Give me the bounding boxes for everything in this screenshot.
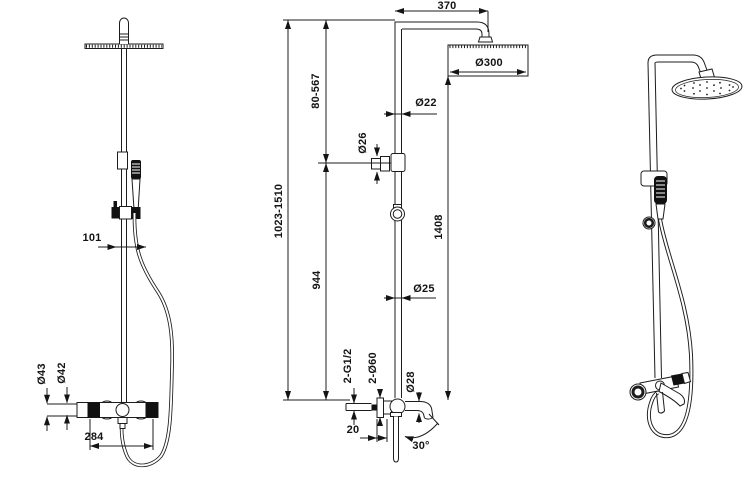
persp-hose (649, 219, 692, 436)
front-dim-20 (360, 419, 387, 442)
dim-label-inlet-thread: 2-G1/2 (342, 349, 354, 384)
dim-label-wall-offset: 20 (347, 424, 360, 436)
dim-label-valve-body-diameter: Ø43 (36, 363, 48, 384)
dim-label-total-height-range: 1023-1510 (273, 184, 285, 238)
side-dim-diameters (47, 387, 77, 431)
dim-label-spout-angle: 30° (412, 440, 429, 452)
side-hose-outline (122, 213, 173, 465)
dim-label-valve-trim-diameter: Ø42 (56, 362, 68, 383)
front-riser-pipe (372, 29, 406, 398)
dim-label-spout-diameter: Ø28 (405, 371, 417, 392)
side-riser-pipe (118, 49, 128, 403)
dim-label-valve-width: 284 (85, 431, 104, 443)
dim-label-head-diameter: Ø300 (475, 57, 503, 69)
side-view-drawing (47, 18, 172, 465)
side-hose-inner (122, 213, 173, 465)
dim-label-upper-pipe-diameter: Ø22 (415, 97, 436, 109)
technical-drawing-canvas: 101 Ø43 Ø42 284 370 Ø300 80-567 Ø22 Ø26 … (0, 0, 750, 478)
persp-shower-head (671, 69, 742, 101)
dim-label-hand-shower-offset: 101 (83, 232, 102, 244)
persp-hand-shower (641, 171, 667, 229)
front-dim-30deg (405, 414, 439, 438)
side-mixer-valve (77, 401, 158, 429)
dim-label-holder-diameter: Ø26 (357, 132, 369, 153)
front-shower-arm (395, 22, 493, 42)
dim-label-upper-adjust-range: 80-567 (310, 73, 322, 108)
side-shower-head (85, 18, 163, 49)
dim-label-lower-height: 944 (311, 271, 323, 290)
dim-label-lower-pipe-diameter: Ø25 (413, 283, 434, 295)
persp-pipe-and-arm (648, 55, 708, 378)
dim-label-escutcheon-diameter: 2-Ø60 (367, 352, 379, 384)
dim-label-head-to-valve: 1408 (433, 214, 445, 239)
perspective-view-drawing (630, 55, 743, 436)
shower-system-line-art (0, 0, 750, 478)
persp-mixer-valve (630, 373, 691, 414)
side-hand-shower (131, 160, 141, 212)
dim-label-arm-length: 370 (438, 0, 457, 12)
